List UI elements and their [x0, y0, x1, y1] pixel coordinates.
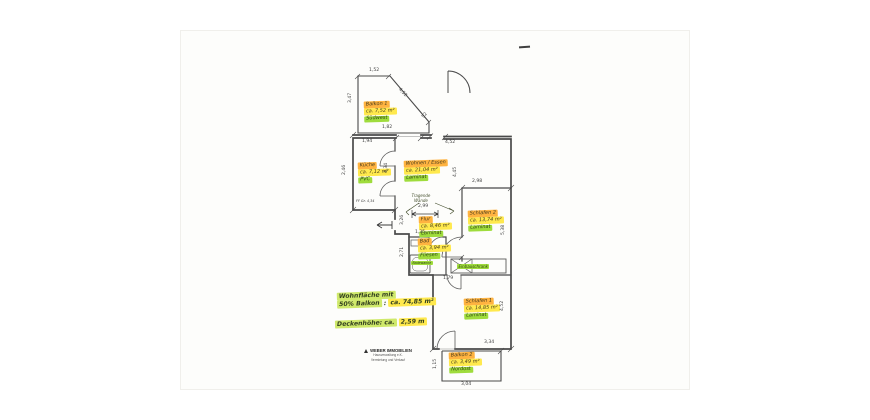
room-floor: Fliesen [418, 253, 440, 260]
dim-label: 1,35 [415, 231, 425, 236]
dim-label: 3,04 [461, 383, 471, 388]
dim-label: 3,26 [401, 215, 406, 225]
dim-label: 1,52 [369, 69, 379, 74]
dim-label: 2,98 [472, 180, 482, 185]
bathtub-label: Badewanne [411, 262, 433, 266]
dim-label: 1,79 [443, 277, 453, 282]
floor-plan-page: Balkon 1 ca. 7,52 m² Südwest Küche ca. 7… [180, 30, 690, 390]
dim-label: 4,45 [454, 167, 459, 177]
stamp-line3: Vermietung und Verkauf [353, 358, 423, 363]
room-floor: Nordost [449, 366, 473, 374]
dim-label: 3,47 [349, 93, 354, 103]
room-label-balkon1: Balkon 1 ca. 7,52 m² Südwest [364, 100, 397, 123]
living-area-note: Wohnfläche mit 50% Balkon : ca. 74,85 m² [337, 289, 436, 310]
room-label-wohnen-essen: Wohnen / Essen ca. 21,04 m² Laminat [404, 159, 449, 183]
dim-label: 2,71 [401, 247, 406, 257]
dim-label: 1,94 [362, 140, 372, 145]
inner-walls [395, 138, 511, 275]
dim-label: 4,34 [385, 163, 390, 173]
window-spec-label: FF Gr. 4,34 [356, 199, 374, 203]
room-floor: Laminat [464, 312, 489, 320]
note-text: 50% Balkon [337, 300, 382, 310]
note-text: Deckenhöhe: ca. [335, 318, 397, 328]
room-label-balkon2: Balkon 2 ca. 3,49 m² Nordost [449, 351, 482, 374]
room-floor: Laminat [468, 224, 493, 232]
note-value: ca. 74,85 m² [388, 298, 435, 308]
dim-label: 4,52 [445, 141, 455, 146]
room-floor: Laminat [404, 175, 429, 183]
note-text: Wohnfläche mit [337, 290, 396, 300]
note-line: Wände [408, 199, 434, 204]
dim-label: 1,15 [434, 359, 439, 369]
dim-label: 2,46 [343, 165, 348, 175]
note-value: 2,59 m [399, 317, 427, 326]
room-label-bad: Bad ca. 3,94 m² Fliesen [418, 237, 451, 260]
dim-label: 4,52 [501, 301, 506, 311]
dim-label: 5,38 [502, 225, 507, 235]
room-label-schlafen2: Schlafen 2 ca. 13,74 m² Laminat [468, 209, 505, 232]
built-in-closet-label: Einbauschrank [457, 265, 489, 270]
dim-label: 1,82 [382, 126, 392, 131]
load-bearing-walls-note: Tragende Wände [408, 194, 434, 204]
room-floor: PVC [358, 177, 372, 184]
room-label-schlafen1: Schlafen 1 ca. 14,85 m² Laminat [464, 297, 501, 320]
company-stamp: WEBER IMMOBILIEN Hausverwaltung e.K. Ver… [353, 348, 423, 363]
room-floor: Südwest [364, 115, 389, 123]
screenshot-root: { "document": {"type": "floor-plan-scan"… [0, 0, 870, 420]
stairwell-door-arc [448, 71, 470, 93]
floor-plan-drawing [181, 31, 691, 391]
roof-triangle-icon [364, 349, 368, 353]
entrance-arrow [377, 221, 392, 229]
dim-label: 2,99 [418, 205, 428, 210]
dim-label: 3,34 [484, 341, 494, 346]
